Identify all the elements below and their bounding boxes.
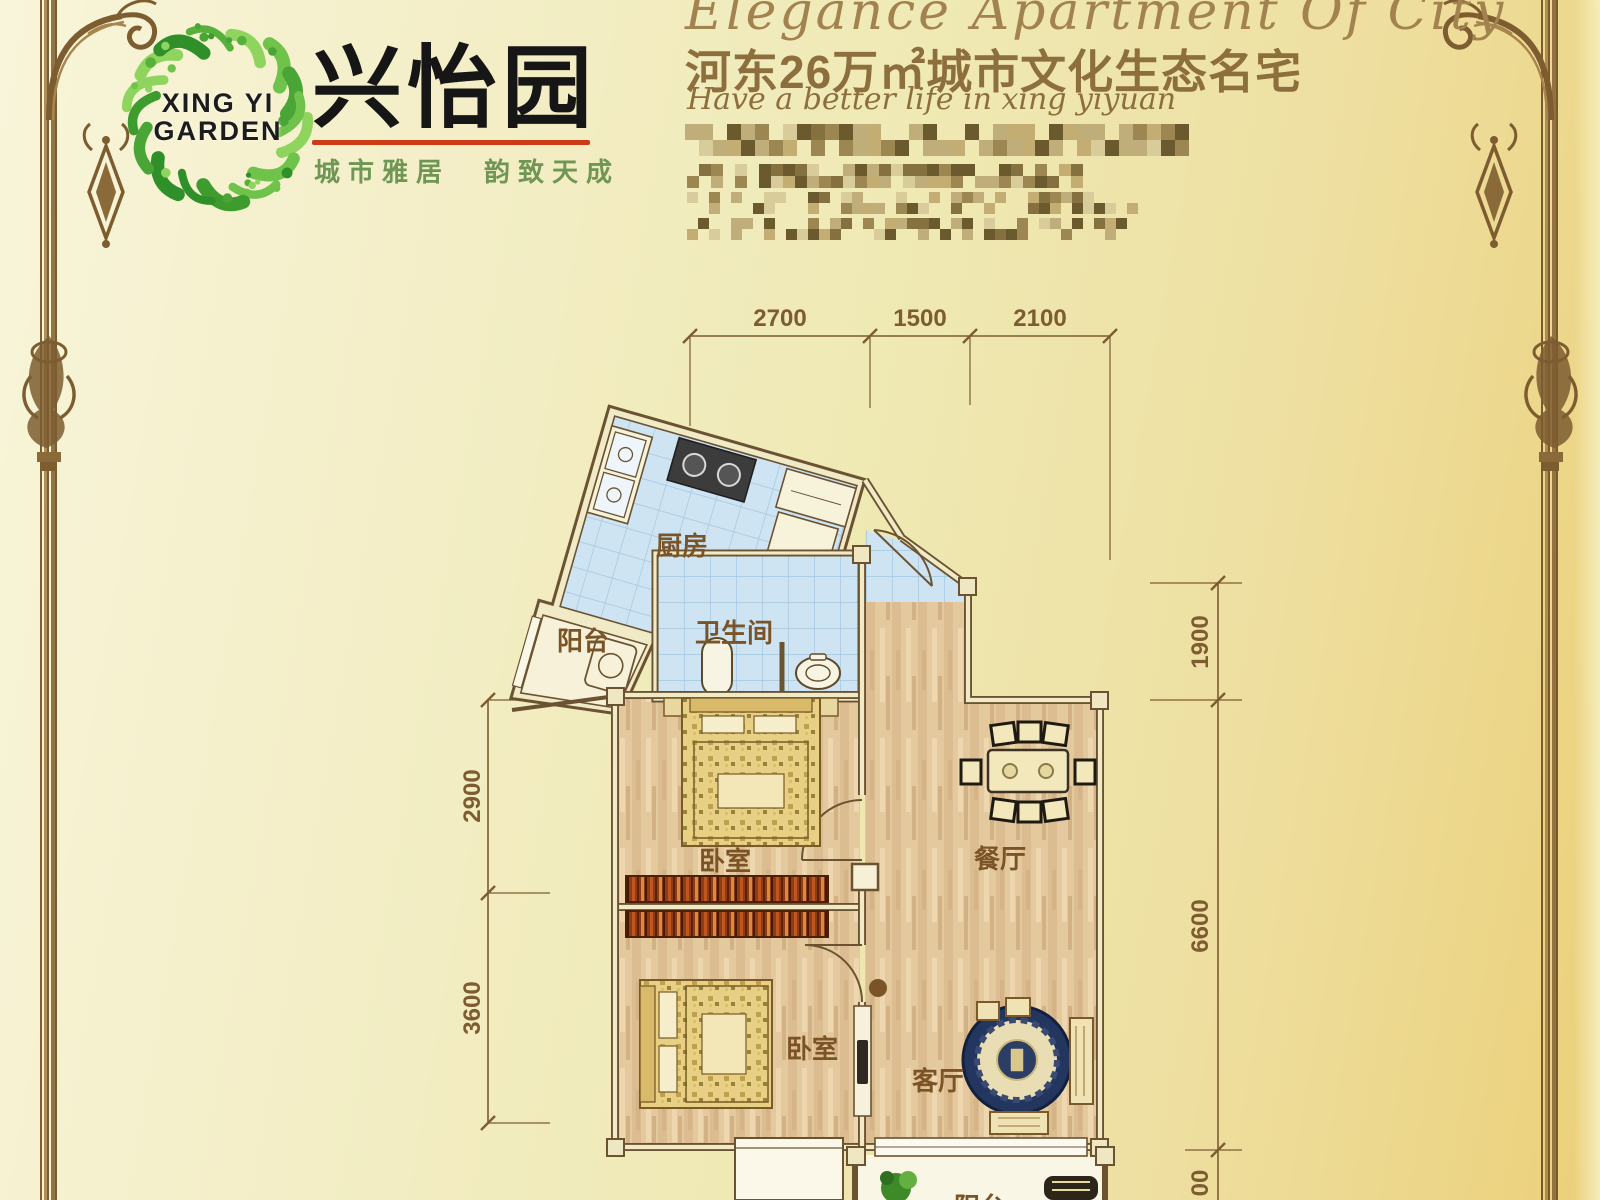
dim-right-1900: 1900 [1187,615,1214,668]
wreath-leaf-dot [168,64,176,72]
dim-right-partial: 00 [1187,1170,1214,1197]
brand-slogan: 城市雅居 韵致天成 [314,152,620,189]
wreath-leaf-dot [237,36,247,46]
bedroom1-bed [664,698,838,846]
label-bedroom1: 卧室 [699,846,751,876]
redacted-contact-line-4 [687,218,1129,240]
label-bedroom2: 卧室 [786,1034,838,1064]
label-kitchen: 厨房 [656,531,708,561]
wreath-leaf-dot [255,179,260,184]
dim-right-6600: 6600 [1187,899,1214,952]
tagline-english: Have a better life in xing yiyuan [687,82,1176,117]
wreath-leaf-dot [161,168,171,178]
wreath-leaf-dot [268,47,277,56]
bedroom2-bay-window [735,1138,843,1200]
redacted-contact-line-1 [685,124,1190,156]
wreath-leaf-dot [282,168,293,179]
wreath-leaf-dot [195,23,201,29]
brand-underline [312,140,590,145]
wreath-leaf-dot [226,37,232,43]
wall-pier [852,864,878,890]
lounge-chair [1044,1176,1098,1200]
dim-top-2700: 2700 [753,305,806,332]
logo-text-line2: GARDEN [118,116,318,147]
dim-top-1500: 1500 [893,305,946,332]
redacted-contact-line-2 [687,164,1089,188]
poster-page: { "brand": { "logo_line1": "XING YI", "l… [0,0,1600,1200]
wreath-leaf-dot [161,42,169,50]
label-living: 客厅 [912,1066,964,1096]
wreath-leaf-dot [223,193,233,203]
label-bathroom: 卫生间 [695,618,773,648]
right-frame-ornament [1360,0,1600,560]
dim-top-2100: 2100 [1013,305,1066,332]
label-balcony: 阳台 [557,626,609,656]
dim-left-3600: 3600 [459,981,486,1034]
wreath-leaf-dot [145,57,156,68]
wreath-leaf-dot [273,184,281,192]
decor-plant-small [869,979,887,997]
wreath-leaf-dot [243,189,250,196]
wreath-leaf-dot [246,173,251,178]
wreath-leaf-dot [276,147,286,157]
dim-left-2900: 2900 [459,769,486,822]
entry-tile-floor [865,530,966,602]
logo-text-line1: XING YI [118,88,318,119]
balcony-slider-door [875,1138,1087,1156]
brand-name-cn: 兴怡园 [312,44,597,134]
label-dining: 餐厅 [974,844,1026,874]
wreath-leaf-dot [199,33,208,42]
wardrobe-strip-1 [626,876,828,902]
redacted-contact-line-3 [687,192,1143,214]
floor-plan: 2700 1500 2100 2900 3600 1900 6600 00 [450,290,1270,1200]
wreath-leaf-dot [208,33,214,39]
wardrobe-strip-2 [626,911,828,937]
label-balcony2: 阳台 [954,1192,1006,1200]
bedroom2-bed [640,980,772,1108]
wreath-leaf-dot [249,182,256,189]
